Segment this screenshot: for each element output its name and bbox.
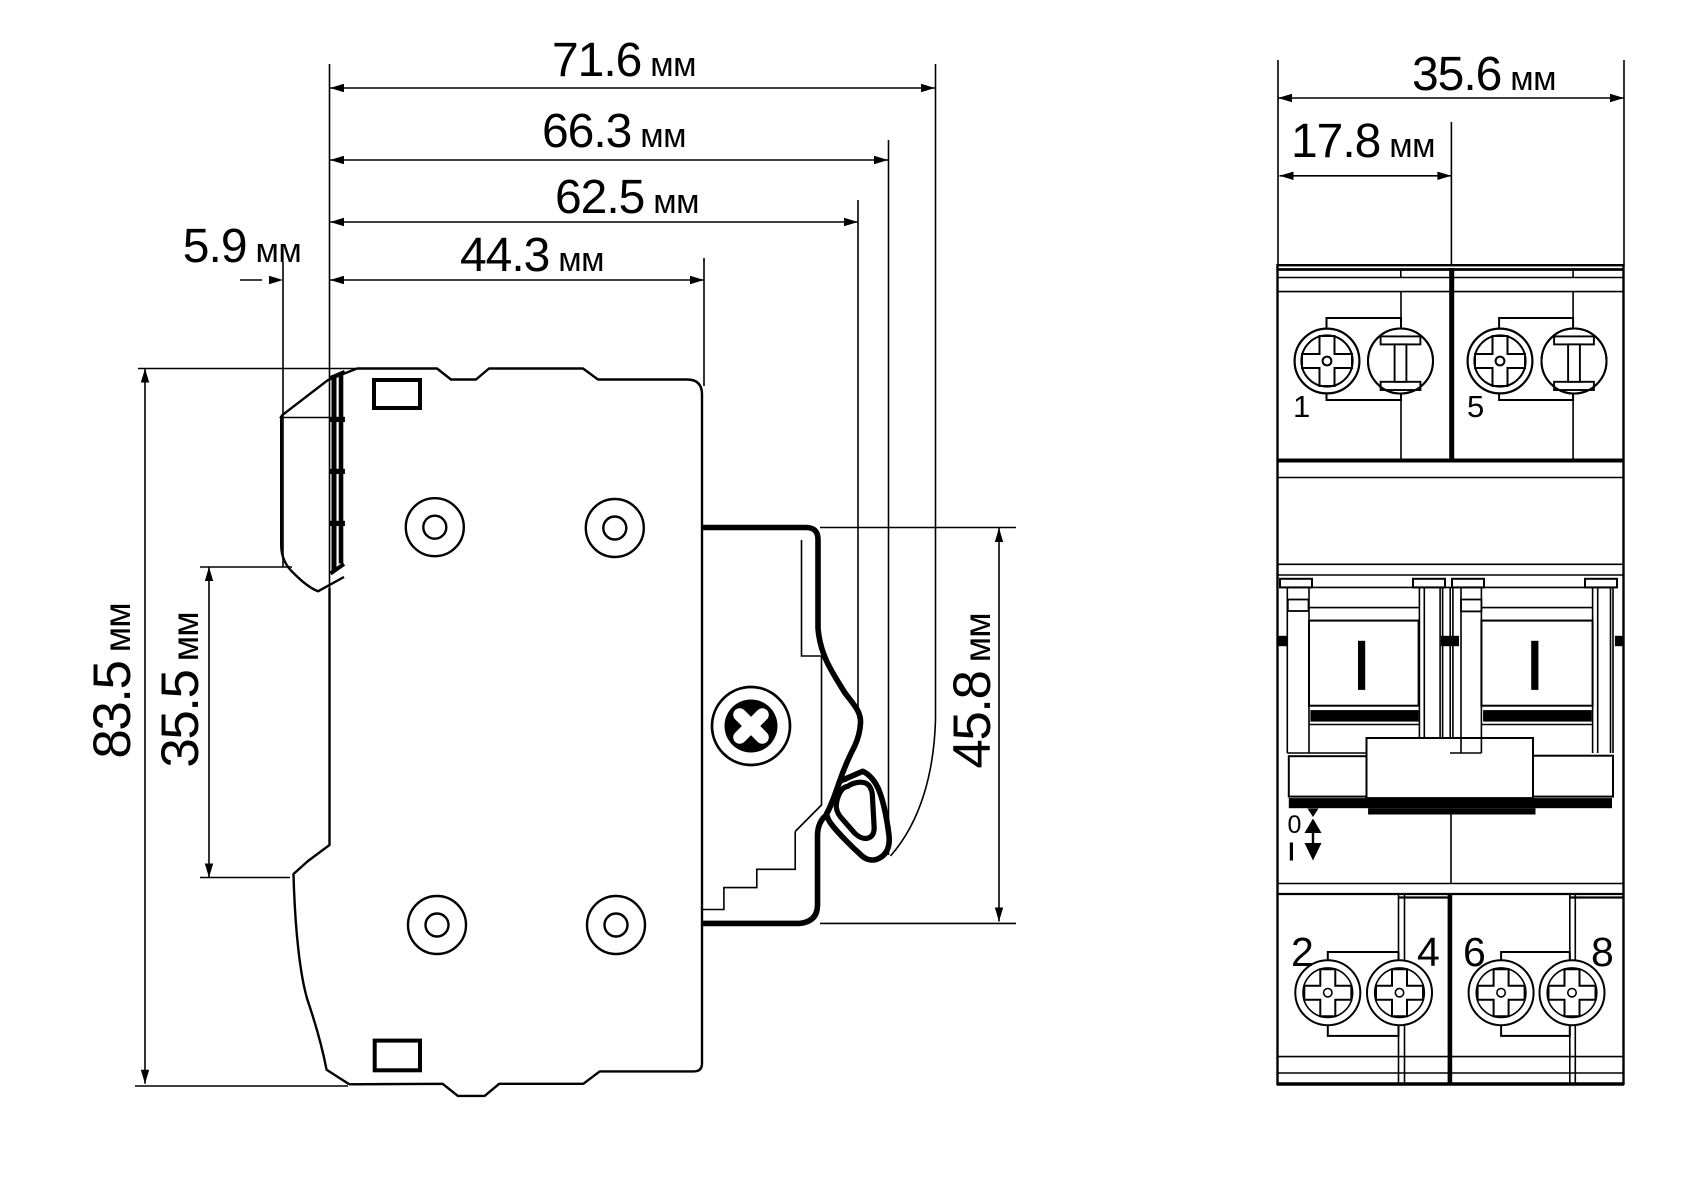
svg-text:8: 8 bbox=[1591, 929, 1614, 975]
svg-text:2: 2 bbox=[1291, 929, 1314, 975]
svg-text:0: 0 bbox=[1288, 811, 1302, 839]
svg-text:1: 1 bbox=[1293, 389, 1310, 424]
svg-text:6: 6 bbox=[1463, 929, 1486, 975]
svg-text:5: 5 bbox=[1467, 389, 1484, 424]
svg-text:4: 4 bbox=[1417, 929, 1440, 975]
